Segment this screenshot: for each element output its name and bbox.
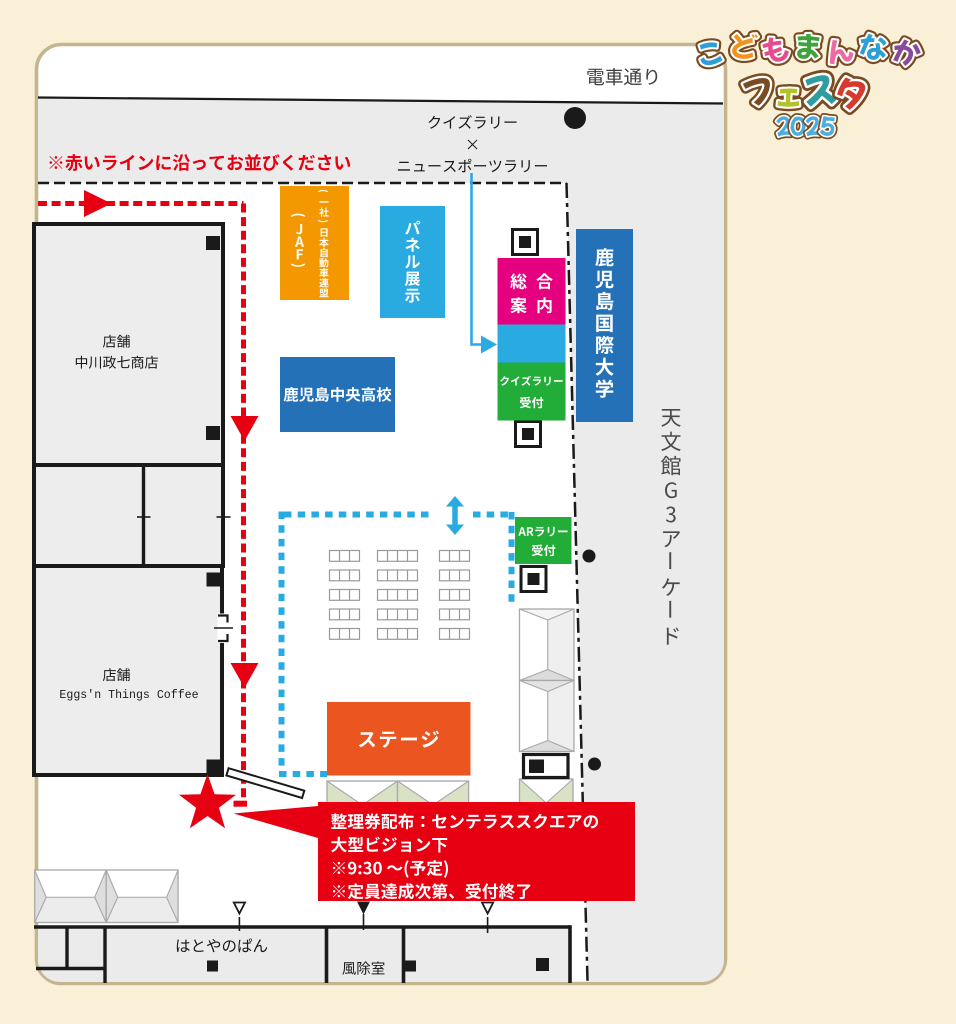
svg-text:Eggs'n Things Coffee: Eggs'n Things Coffee [59, 689, 198, 702]
